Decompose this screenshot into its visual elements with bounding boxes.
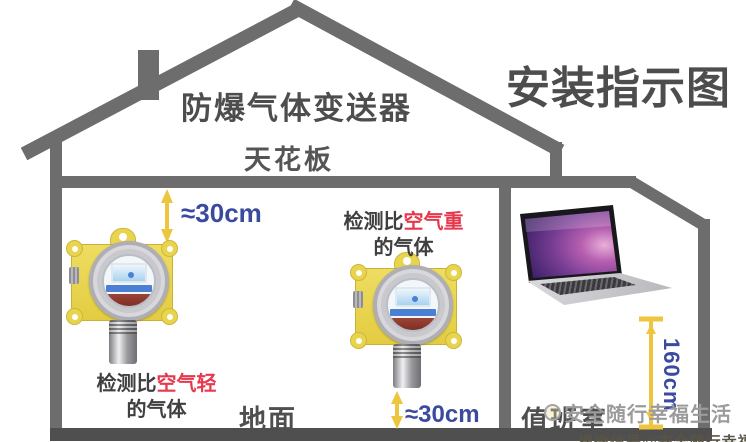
roof-left-slope bbox=[24, 8, 301, 154]
lighter-highlight: 空气轻 bbox=[157, 373, 217, 395]
watermark: 安全随行幸福生活 bbox=[544, 398, 732, 427]
corner-tab bbox=[66, 308, 83, 325]
lcd-screen bbox=[111, 263, 147, 283]
red-label-band bbox=[104, 294, 156, 306]
floor-label: 地面 bbox=[239, 398, 297, 437]
heavier-gas-annotation: 检测比空气重 的气体 bbox=[341, 209, 466, 261]
bottom-gap-measurement: ≈30cm bbox=[405, 401, 480, 429]
ceiling bbox=[56, 176, 636, 188]
cable-gland bbox=[69, 267, 79, 284]
watermark-bottom: 搜微信号@安全随行幸福生活 bbox=[578, 431, 746, 442]
lighter-gas-line1: 检测比空气轻 bbox=[94, 371, 219, 397]
detector-body bbox=[355, 268, 457, 345]
blue-strip bbox=[106, 285, 152, 292]
corner-tab bbox=[350, 332, 367, 349]
corner-tab bbox=[161, 308, 178, 325]
bottom-gap-arrow-icon bbox=[391, 391, 403, 429]
top-gap-measurement: ≈30cm bbox=[181, 198, 262, 229]
ceiling-label: 天花板 bbox=[244, 138, 334, 177]
corner-tab bbox=[445, 264, 462, 281]
heavier-highlight: 空气重 bbox=[404, 211, 464, 233]
heavier-gas-line2: 的气体 bbox=[341, 235, 466, 261]
corner-tab bbox=[350, 264, 367, 281]
installation-diagram: 安装指示图 防爆气体变送器 天花板 地面 值班室 ≈30cm ≈30cm 160… bbox=[0, 0, 746, 442]
detector-display bbox=[102, 254, 156, 308]
lcd-screen bbox=[395, 287, 431, 307]
gas-detector-icon-lighter bbox=[66, 228, 178, 368]
laptop-icon bbox=[512, 192, 680, 310]
corner-tab bbox=[161, 240, 178, 257]
roof-label: 防爆气体变送器 bbox=[181, 83, 412, 128]
sensor-cylinder bbox=[109, 320, 137, 364]
red-label-band bbox=[388, 318, 440, 330]
gas-detector-icon-heavier bbox=[350, 252, 462, 392]
corner-tab bbox=[445, 332, 462, 349]
lighter-gas-annotation: 检测比空气轻 的气体 bbox=[94, 371, 219, 423]
page-title: 安装指示图 bbox=[506, 52, 731, 116]
detector-bezel bbox=[373, 265, 453, 345]
heavier-gas-line1: 检测比空气重 bbox=[341, 209, 466, 235]
lighter-gas-line2: 的气体 bbox=[94, 397, 219, 423]
detector-display bbox=[386, 278, 440, 332]
cable-gland bbox=[353, 291, 363, 308]
watermark-logo-icon bbox=[544, 404, 561, 421]
detector-body bbox=[71, 244, 173, 321]
roof-end-post bbox=[550, 142, 562, 188]
corner-tab bbox=[66, 240, 83, 257]
divider-wall bbox=[499, 188, 511, 436]
watermark-text: 安全随行幸福生活 bbox=[564, 398, 732, 427]
blue-strip bbox=[390, 309, 436, 316]
detector-bezel bbox=[89, 241, 169, 321]
sensor-cylinder bbox=[393, 344, 421, 388]
